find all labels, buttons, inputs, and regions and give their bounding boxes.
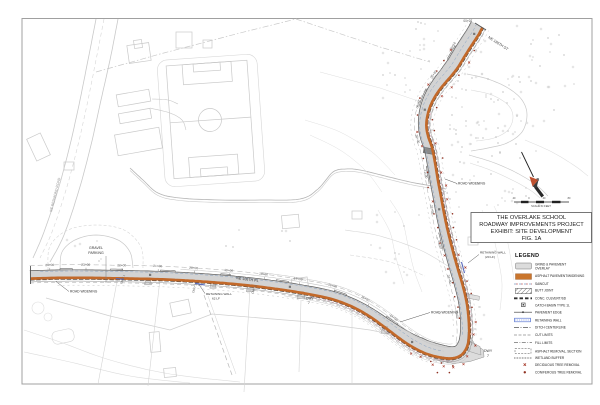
svg-text:21+00: 21+00 <box>153 264 162 268</box>
svg-text:RETAINING WALL: RETAINING WALL <box>535 318 562 322</box>
svg-text:OVERLAY: OVERLAY <box>535 267 551 271</box>
svg-text:62 LF: 62 LF <box>212 297 220 301</box>
svg-text:DITCH CENTERLINE: DITCH CENTERLINE <box>535 326 566 330</box>
svg-text:RETAINING WALL: RETAINING WALL <box>480 251 506 255</box>
svg-text:CONIFEROUS TREE REMOVAL: CONIFEROUS TREE REMOVAL <box>535 371 582 375</box>
svg-text:26+00: 26+00 <box>463 19 472 23</box>
svg-text:CUT LIMITS: CUT LIMITS <box>535 333 553 337</box>
svg-text:CONC. CULVERT/SD: CONC. CULVERT/SD <box>535 297 567 301</box>
svg-text:ROAD WIDENING: ROAD WIDENING <box>70 290 98 294</box>
svg-text:RETAINING WALL: RETAINING WALL <box>206 292 232 296</box>
svg-text:(20 LF): (20 LF) <box>485 255 495 259</box>
svg-text:ROADWAY IMPROVEMENTS PROJECT: ROADWAY IMPROVEMENTS PROJECT <box>479 222 584 228</box>
svg-text:ROAD WIDENING: ROAD WIDENING <box>458 182 486 186</box>
svg-text:7: 7 <box>308 301 310 305</box>
svg-text:THE OVERLAKE SCHOOL: THE OVERLAKE SCHOOL <box>497 215 566 221</box>
svg-text:N: N <box>537 178 540 182</box>
svg-text:PAVEMENT EDGE: PAVEMENT EDGE <box>535 310 562 314</box>
svg-text:FIG. 1A: FIG. 1A <box>522 236 542 242</box>
svg-text:DWY: DWY <box>484 349 493 353</box>
svg-text:EXHIBIT: SITE DEVELOPMENT: EXHIBIT: SITE DEVELOPMENT <box>491 229 573 235</box>
svg-text:SAWCUT: SAWCUT <box>535 282 549 286</box>
svg-text:ASPHALT REMOVAL, SECTION: ASPHALT REMOVAL, SECTION <box>535 349 582 353</box>
svg-text:PARKING: PARKING <box>88 251 104 255</box>
svg-text:23+00: 23+00 <box>81 263 90 267</box>
svg-text:24+00: 24+00 <box>45 263 54 267</box>
svg-text:WETLAND BUFFER: WETLAND BUFFER <box>535 356 565 360</box>
svg-text:19+00: 19+00 <box>224 268 233 273</box>
svg-text:20+00: 20+00 <box>189 266 198 271</box>
svg-text:SCALE IN FEET: SCALE IN FEET <box>531 204 551 208</box>
svg-text:FILL LIMITS: FILL LIMITS <box>535 341 552 345</box>
svg-text:BUTT JOINT: BUTT JOINT <box>535 289 553 293</box>
svg-text:LEGEND: LEGEND <box>515 253 539 259</box>
svg-text:DECIDUOUS TREE REMOVAL: DECIDUOUS TREE REMOVAL <box>535 363 580 367</box>
svg-text:CATCH BASIN TYPE 1L: CATCH BASIN TYPE 1L <box>535 303 570 307</box>
svg-text:ROAD WIDENING: ROAD WIDENING <box>431 311 459 315</box>
svg-text:7: 7 <box>487 354 489 358</box>
svg-text:ASPHALT PAVEMENT/WIDENING: ASPHALT PAVEMENT/WIDENING <box>535 274 585 278</box>
svg-text:22+00: 22+00 <box>117 263 126 267</box>
svg-text:GRAVEL: GRAVEL <box>89 246 103 250</box>
